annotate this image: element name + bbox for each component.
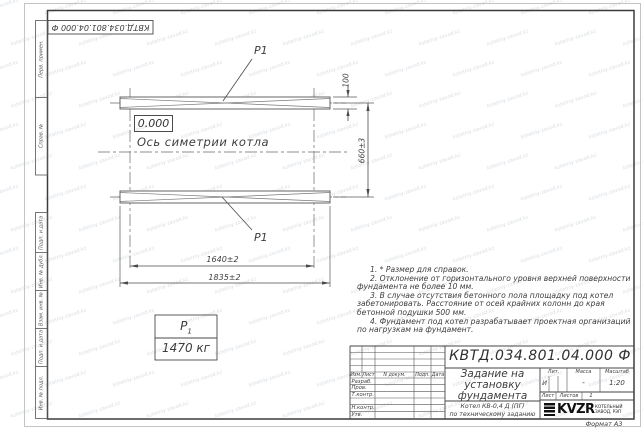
row-nkontr: Н.контр. xyxy=(352,405,375,411)
value-lit: И xyxy=(540,379,549,387)
note-4: 4. Фундамент под котел разрабатывает про… xyxy=(357,318,635,335)
dim-100: 100 xyxy=(342,70,351,90)
margin-label-vzam-inv: Взам. инв. № xyxy=(35,291,47,328)
value-scale: 1:20 xyxy=(600,379,634,387)
note-3: 3. В случае отсутствия бетонного пола пл… xyxy=(357,292,635,318)
header-scale: Масштаб xyxy=(600,369,634,375)
format-label: Формат А3 xyxy=(575,420,633,428)
header-lit: Лит. xyxy=(540,369,567,375)
logo-text: KVZR xyxy=(557,402,595,417)
leader-top xyxy=(223,59,252,101)
title-block-doc-number: КВТД.034.801.04.000 Ф xyxy=(447,348,633,364)
sheets-label: Листов xyxy=(556,393,582,399)
row-razrab: Разраб. xyxy=(352,379,372,385)
margin-label-perv-primen: Перв. примен. xyxy=(35,20,47,97)
col-podp: Подп. xyxy=(414,373,431,378)
p1-label-top: P1 xyxy=(254,44,268,57)
col-list: Лист xyxy=(362,373,375,378)
header-mass: Масса xyxy=(567,369,600,375)
row-utv: Утв. xyxy=(352,412,363,418)
margin-label-podp-data-1: Подп. и дата xyxy=(35,213,47,252)
sheet-label: Лист xyxy=(540,393,556,399)
note-2: 2. Отклонение от горизонтального уровня … xyxy=(357,275,635,292)
col-izm: Изм. xyxy=(350,373,362,378)
value-mass: - xyxy=(567,378,600,387)
title-block-subject: Котел КВ-0,4 Д (ПГ) по техническому зада… xyxy=(446,403,539,418)
logo-caption: КОТЕЛЬНЫЙ ЗАВОД, РЭП xyxy=(595,404,622,414)
kvzr-logo: KVZR КОТЕЛЬНЫЙ ЗАВОД, РЭП xyxy=(543,401,633,418)
margin-label-sprav-n: Справ. № xyxy=(35,98,47,175)
title-block-title: Задание на установку фундамента xyxy=(446,369,539,402)
weight-symbol: Р1 xyxy=(155,319,217,335)
dim-1640: 1640±2 xyxy=(195,255,250,264)
row-prov: Пров. xyxy=(352,385,367,391)
margin-label-podp-data-2: Подп. и дата xyxy=(35,329,47,366)
p1-label-bottom: P1 xyxy=(254,231,268,244)
symmetry-axis-label: Ось симетрии котла xyxy=(137,135,269,149)
col-ndokum: N докум. xyxy=(375,373,414,378)
row-tkontr: Т.контр. xyxy=(352,392,374,398)
drawing-sheet: kotelniy-zavod.kzkotelniy-zavod.kzkoteln… xyxy=(0,0,644,430)
col-data: Дата xyxy=(431,373,445,378)
logo-stripes-icon xyxy=(544,403,555,417)
weight-value: 1470 кг xyxy=(155,341,217,355)
sheets-count: 1 xyxy=(582,393,600,399)
drawing-linework xyxy=(0,0,644,430)
dim-660: 660±3 xyxy=(358,133,367,167)
margin-label-inv-dubl: Инв. № дубл. xyxy=(35,253,47,290)
dim-1835: 1835±2 xyxy=(197,273,252,282)
margin-label-inv-podl: Инв. № подл. xyxy=(35,367,47,418)
stamp-doc-number: КВТД.034.801.04.000 Ф xyxy=(48,20,153,34)
elevation-mark: 0.000 xyxy=(134,115,173,132)
notes-block: 1. * Размер для справок. 2. Отклонение о… xyxy=(357,266,635,335)
